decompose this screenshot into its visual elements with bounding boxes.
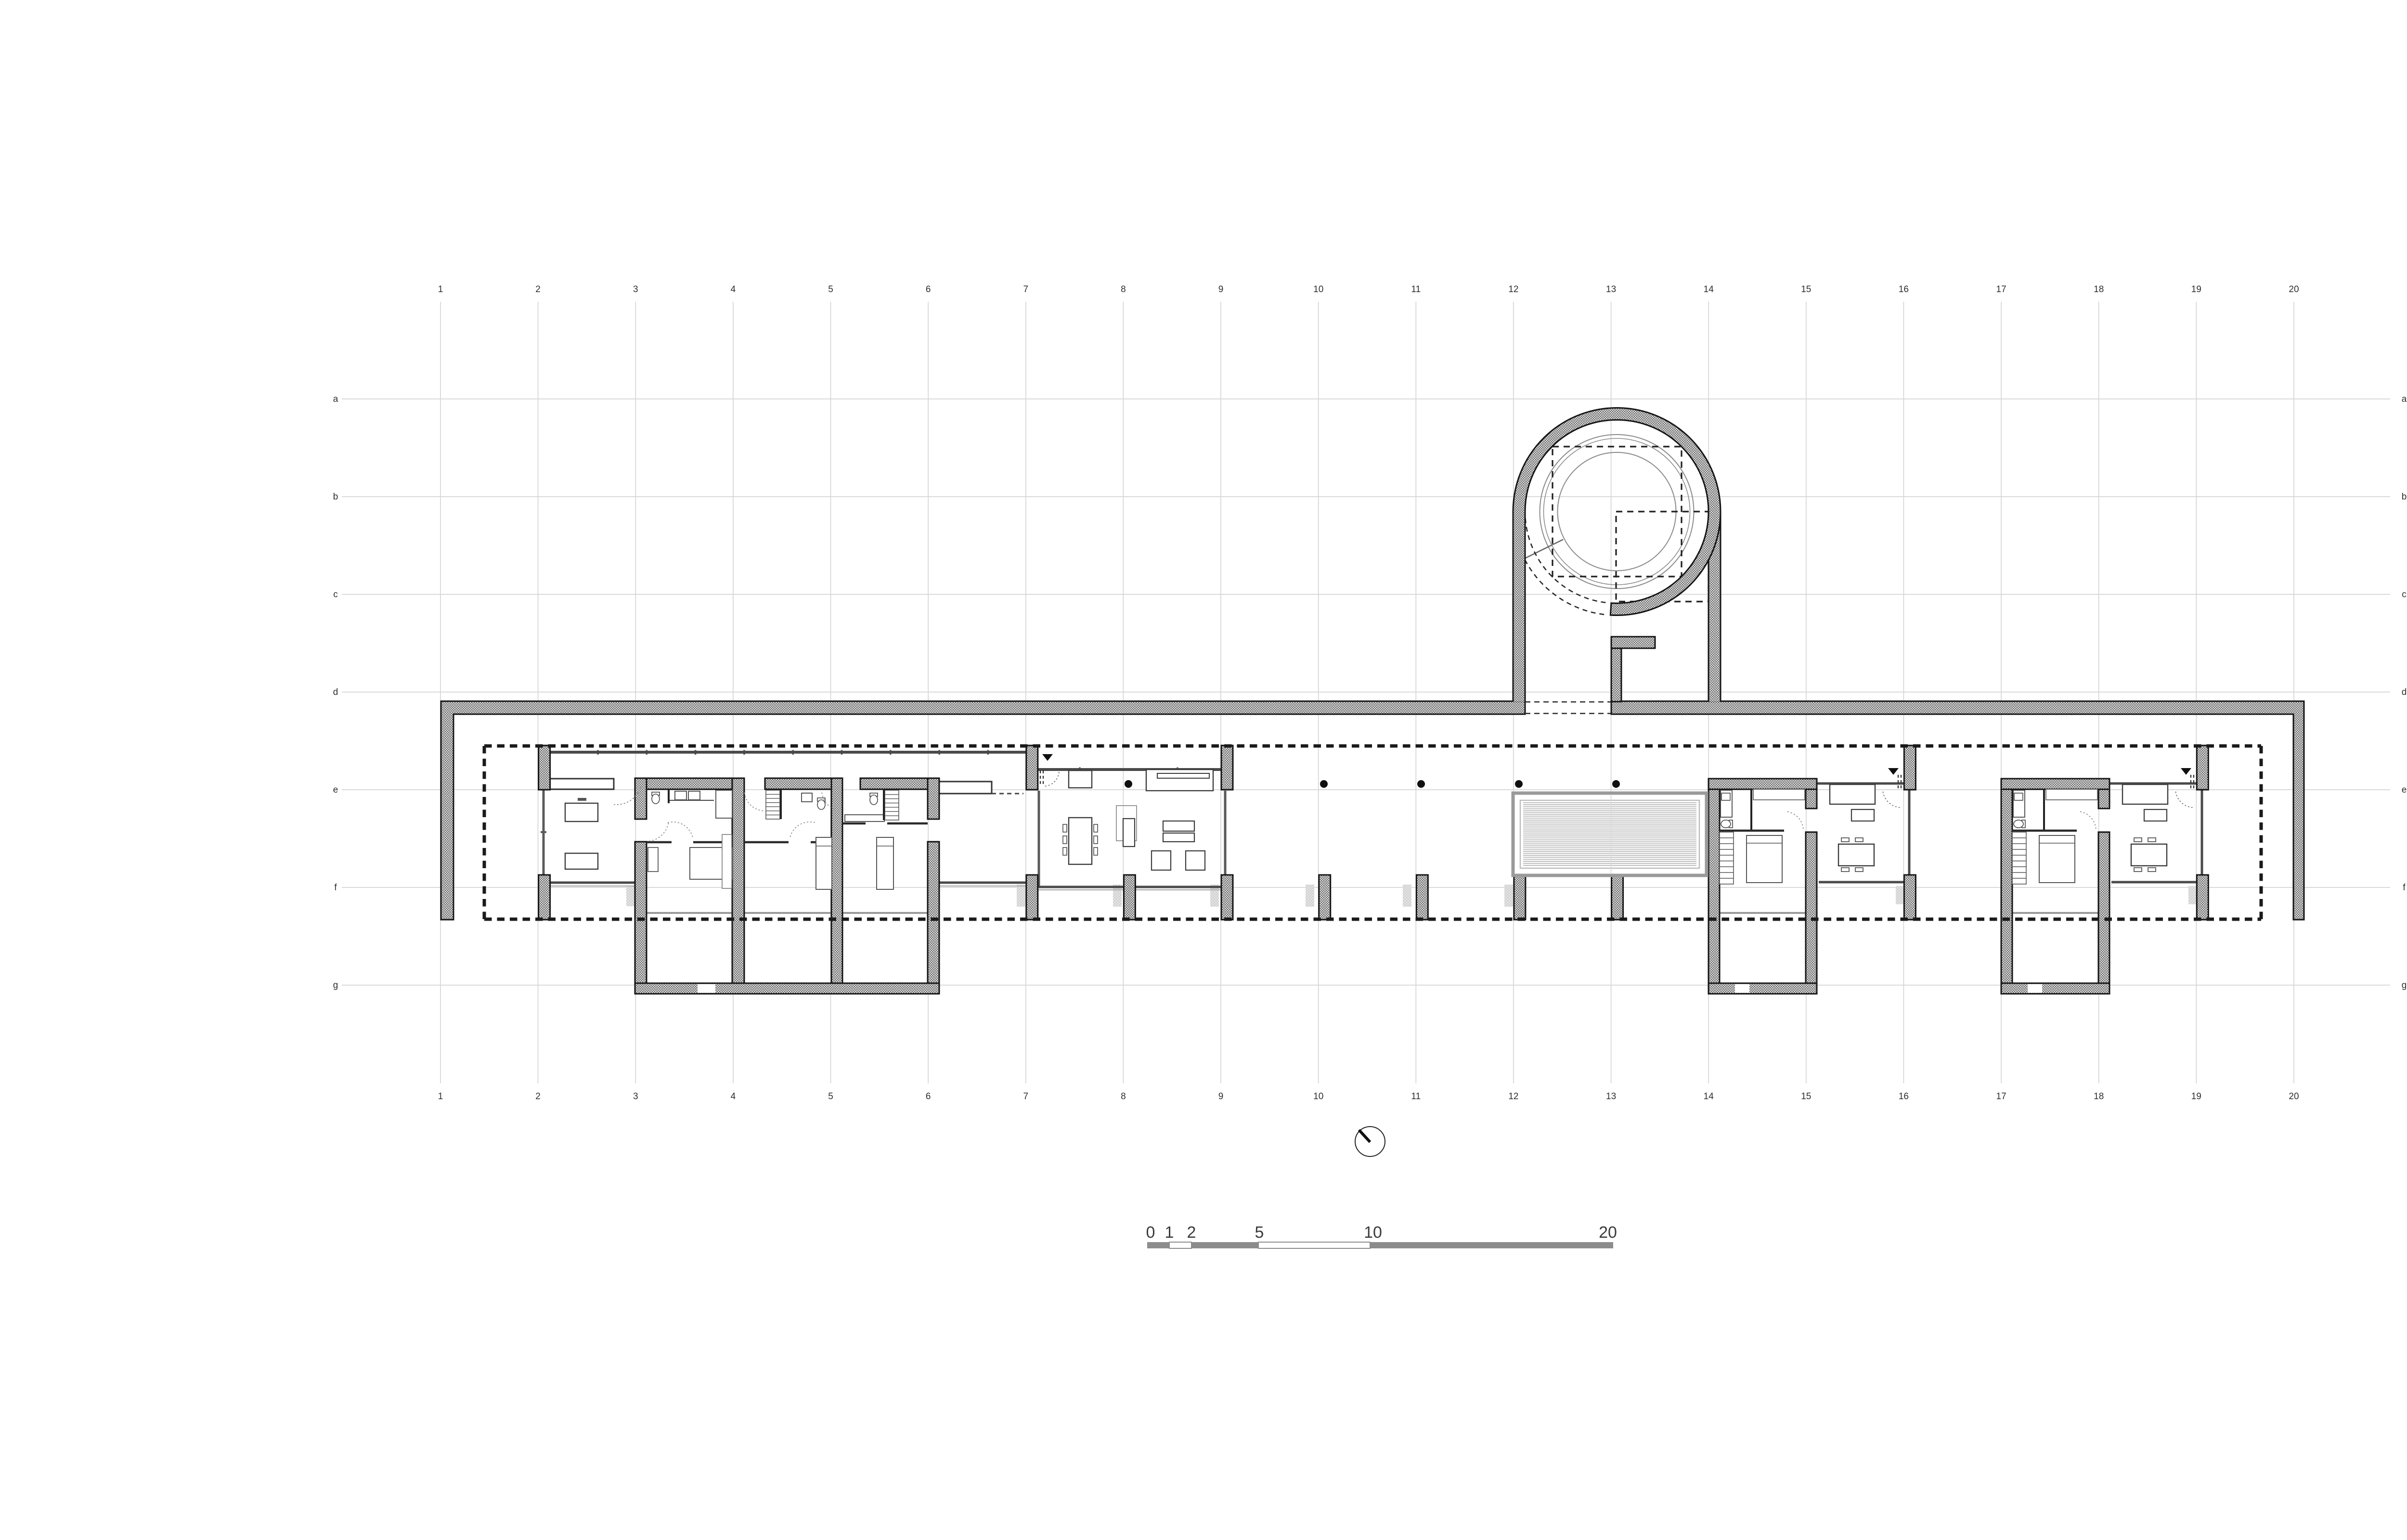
svg-text:c: c (2402, 590, 2407, 600)
svg-text:18: 18 (2094, 284, 2104, 295)
svg-text:0: 0 (1146, 1223, 1155, 1242)
svg-text:d: d (333, 687, 338, 697)
svg-text:15: 15 (1801, 284, 1811, 295)
svg-text:2: 2 (535, 1091, 541, 1102)
svg-text:1: 1 (1165, 1223, 1174, 1242)
svg-text:6: 6 (926, 284, 931, 295)
svg-text:9: 9 (1218, 1091, 1224, 1102)
svg-text:14: 14 (1704, 1091, 1714, 1102)
svg-text:11: 11 (1411, 284, 1421, 295)
svg-text:5: 5 (828, 284, 833, 295)
svg-text:12: 12 (1508, 284, 1518, 295)
svg-text:17: 17 (1996, 284, 2006, 295)
svg-text:13: 13 (1606, 284, 1616, 295)
svg-text:1: 1 (438, 1091, 443, 1102)
svg-text:17: 17 (1996, 1091, 2006, 1102)
svg-text:8: 8 (1121, 1091, 1126, 1102)
svg-text:7: 7 (1023, 284, 1029, 295)
svg-text:3: 3 (633, 1091, 638, 1102)
svg-text:10: 10 (1313, 1091, 1323, 1102)
svg-text:6: 6 (926, 1091, 931, 1102)
svg-text:16: 16 (1899, 284, 1909, 295)
svg-text:7: 7 (1023, 1091, 1029, 1102)
svg-text:2: 2 (1187, 1223, 1196, 1242)
svg-text:c: c (333, 590, 338, 600)
svg-text:b: b (2402, 492, 2407, 502)
svg-text:e: e (333, 785, 338, 795)
svg-text:g: g (333, 980, 338, 990)
svg-text:15: 15 (1801, 1091, 1811, 1102)
svg-text:1: 1 (438, 284, 443, 295)
svg-text:f: f (334, 883, 337, 893)
svg-text:10: 10 (1313, 284, 1323, 295)
svg-text:20: 20 (2289, 284, 2299, 295)
svg-text:10: 10 (1364, 1223, 1382, 1242)
svg-text:e: e (2402, 785, 2407, 795)
svg-text:18: 18 (2094, 1091, 2104, 1102)
svg-text:16: 16 (1899, 1091, 1909, 1102)
svg-text:19: 19 (2191, 284, 2201, 295)
svg-text:8: 8 (1121, 284, 1126, 295)
svg-text:a: a (2402, 394, 2407, 404)
svg-text:g: g (2402, 980, 2407, 990)
svg-text:20: 20 (2289, 1091, 2299, 1102)
svg-text:20: 20 (1599, 1223, 1617, 1242)
svg-text:11: 11 (1411, 1091, 1421, 1102)
svg-text:13: 13 (1606, 1091, 1616, 1102)
svg-text:5: 5 (1255, 1223, 1264, 1242)
svg-text:19: 19 (2191, 1091, 2201, 1102)
svg-text:2: 2 (535, 284, 541, 295)
svg-text:3: 3 (633, 284, 638, 295)
svg-text:a: a (333, 394, 338, 404)
svg-text:9: 9 (1218, 284, 1224, 295)
svg-text:12: 12 (1508, 1091, 1518, 1102)
svg-text:b: b (333, 492, 338, 502)
svg-text:4: 4 (731, 284, 736, 295)
svg-text:5: 5 (828, 1091, 833, 1102)
svg-text:14: 14 (1704, 284, 1714, 295)
svg-text:f: f (2403, 883, 2406, 893)
svg-text:d: d (2402, 687, 2407, 697)
svg-text:4: 4 (731, 1091, 736, 1102)
